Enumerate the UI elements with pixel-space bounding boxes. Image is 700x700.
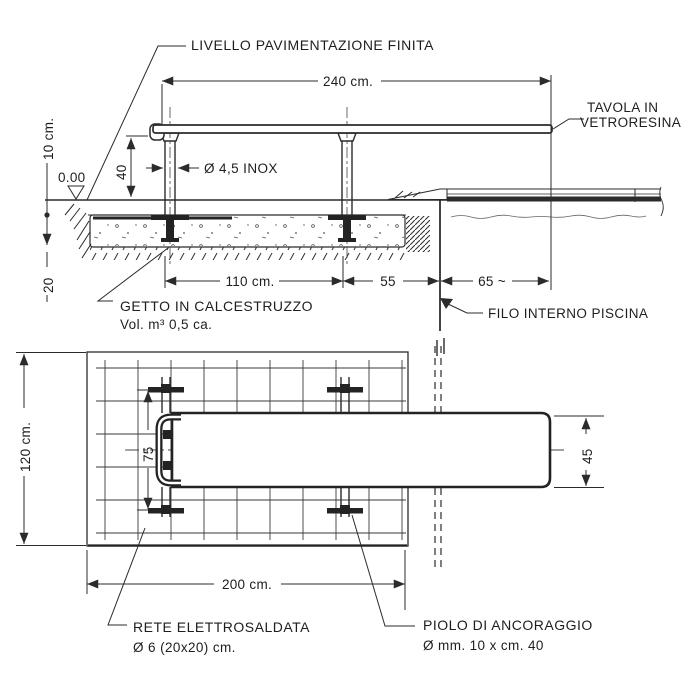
concrete-label-line2: Vol. m³ 0,5 ca. [120, 317, 212, 332]
coping-slab-edge [447, 197, 661, 202]
dim-board-width-value: 45 [580, 448, 595, 464]
mesh-callout: RETE ELETTROSALDATA Ø 6 (20x20) cm. [108, 528, 310, 655]
dim-feet-spacing-value: 75 [141, 446, 156, 462]
dim-slab-length: 200 cm. [87, 550, 405, 610]
diving-board-technical-drawing: 0.00 240 cm. 40 Ø 4,5 INOX 1 [0, 0, 700, 700]
concrete-foundation [65, 204, 430, 260]
dim-board-width: 45 [554, 416, 604, 488]
dim-board-length-value: 240 cm. [323, 74, 373, 89]
frame-joint [163, 461, 173, 470]
diving-board-section [150, 124, 552, 140]
post-spec-callout: Ø 4,5 INOX [146, 161, 278, 176]
dim-anchor-spacing-value: 110 cm. [225, 274, 274, 289]
dim-slab-width: 120 cm. [16, 353, 86, 546]
level-zero-value: 0.00 [58, 170, 85, 185]
pool-edge-callout: FILO INTERNO PISCINA [440, 298, 648, 321]
anchor-bolt [166, 220, 174, 239]
diving-board-plan [172, 413, 550, 487]
level-marker: 0.00 [58, 170, 85, 199]
frame-joint [163, 430, 173, 439]
board-material-line1: TAVOLA IN [587, 100, 658, 115]
leader-arrowhead [440, 298, 453, 309]
concrete-label-line1: GETTO IN CALCESTRUZZO [120, 298, 313, 314]
post-baseplate [328, 215, 366, 220]
dim-anchor-to-pool-value: 55 [380, 274, 396, 289]
concrete-texture [91, 216, 404, 246]
board-body [153, 125, 552, 133]
dim-rail-height-value: 40 [114, 164, 129, 180]
level-triangle-icon [68, 186, 84, 199]
drawing-canvas: 0.00 240 cm. 40 Ø 4,5 INOX 1 [0, 0, 700, 700]
leader-line [87, 46, 186, 200]
pool-edge-label: FILO INTERNO PISCINA [488, 306, 648, 321]
board-material-callout: TAVOLA IN VETRORESINA [553, 100, 681, 130]
anchor-bolt [343, 220, 351, 239]
dim-pavement-thickness-value: 10 cm. [41, 118, 56, 160]
dim-left-column: 10 cm. 20 [41, 118, 56, 302]
board-material-line2: VETRORESINA [580, 115, 681, 130]
anchor-label-line1: PIOLO DI ANCORAGGIO [423, 617, 593, 633]
leader-line [448, 304, 483, 313]
anchor-foot [338, 238, 356, 242]
anchor-label-line2: Ø mm. 10 x cm. 40 [423, 638, 544, 653]
anchor-foot [161, 238, 179, 242]
plan-view: 120 cm. 75 45 200 cm. [16, 346, 604, 655]
pool-coping [388, 187, 663, 356]
section-view: 0.00 240 cm. 40 Ø 4,5 INOX 1 [41, 37, 681, 356]
dim-lower-chain: 110 cm. 55 65 ~ [165, 256, 549, 289]
post-spec-label: Ø 4,5 INOX [204, 161, 278, 176]
dim-concrete-depth-value: 20 [41, 277, 56, 293]
soil-hatch-left [65, 204, 91, 258]
dim-dot [44, 212, 49, 217]
dim-overhang-value: 65 ~ [478, 274, 506, 289]
water-line [451, 215, 646, 218]
pavement-level-label: LIVELLO PAVIMENTAZIONE FINITA [191, 37, 434, 53]
dim-slab-width-value: 120 cm. [18, 422, 33, 472]
dim-rail-height: 40 [114, 136, 148, 197]
post-baseplate [151, 215, 189, 220]
soil-hatch-bottom [90, 247, 405, 260]
mesh-label-line1: RETE ELETTROSALDATA [133, 619, 310, 635]
dim-slab-length-value: 200 cm. [222, 577, 272, 592]
pavement [45, 200, 447, 215]
concrete-callout: GETTO IN CALCESTRUZZO Vol. m³ 0,5 ca. [98, 248, 313, 332]
soil-hatch-right [406, 216, 430, 252]
mesh-label-line2: Ø 6 (20x20) cm. [133, 640, 236, 655]
